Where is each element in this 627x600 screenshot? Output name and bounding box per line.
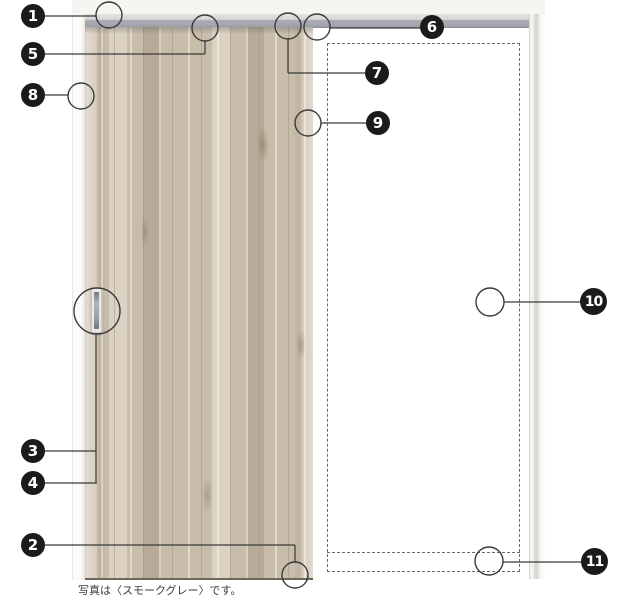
callout-marker-8: 8 — [21, 83, 45, 107]
left-frame-post — [72, 14, 85, 580]
top-rail — [84, 14, 535, 28]
callout-marker-7: 7 — [365, 61, 389, 85]
callout-marker-5: 5 — [21, 42, 45, 66]
opening-dashed-outline — [327, 43, 520, 572]
callout-marker-10: 10 — [580, 288, 607, 315]
door-pull-handle-recess — [94, 292, 99, 329]
opening-bottom-dashed-line — [327, 552, 520, 553]
door-pull-handle — [91, 288, 102, 333]
callout-marker-9: 9 — [366, 111, 390, 135]
right-frame-post — [529, 14, 545, 579]
callout-marker-4: 4 — [21, 471, 45, 495]
callout-marker-6: 6 — [420, 15, 444, 39]
sliding-door-parts-diagram: 1 5 8 3 4 2 6 7 9 10 11 写真は〈スモークグレー〉です。 — [0, 0, 627, 600]
callout-marker-1: 1 — [21, 4, 45, 28]
callout-marker-2: 2 — [21, 533, 45, 557]
wall-band — [72, 0, 545, 15]
callout-marker-3: 3 — [21, 439, 45, 463]
photo-color-caption: 写真は〈スモークグレー〉です。 — [78, 582, 241, 598]
callout-marker-11: 11 — [581, 548, 608, 575]
door-panel — [85, 27, 313, 580]
